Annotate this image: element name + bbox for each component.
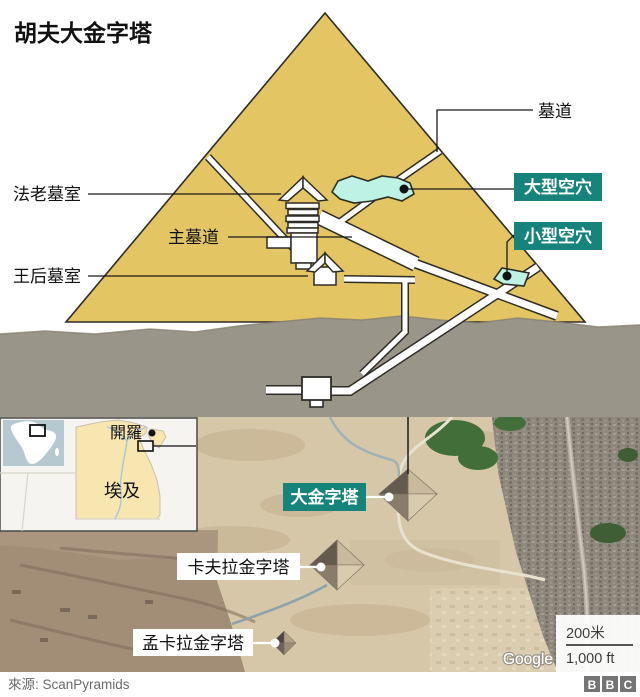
infographic: 胡夫大金字塔 墓道 法老墓室 主墓道 王后墓室 大型空穴 小型空穴 (0, 0, 640, 697)
location-inset: 開羅 埃及 (0, 418, 197, 531)
satellite-map: 大金字塔 卡夫拉金字塔 孟卡拉金字塔 (0, 415, 640, 672)
footer: 來源: ScanPyramids B B C (0, 672, 640, 697)
small-void-label: 小型空穴 (524, 226, 592, 246)
page-title: 胡夫大金字塔 (14, 20, 153, 46)
small-void-tag: 小型空穴 (514, 222, 602, 250)
cairo-dot (149, 430, 156, 437)
map-scale: 200米 1,000 ft (556, 615, 640, 672)
queens-chamber-label: 王后墓室 (13, 267, 81, 286)
ruins-field (350, 540, 500, 585)
scale-imperial: 1,000 ft (566, 651, 614, 667)
pyramid-cross-section: 胡夫大金字塔 墓道 法老墓室 主墓道 王后墓室 大型空穴 小型空穴 (0, 0, 640, 417)
scale-metric: 200米 (566, 625, 605, 642)
bbc-letter-c: C (624, 678, 633, 692)
bbc-logo: B B C (584, 676, 636, 692)
bbc-letter-b2: B (606, 678, 615, 692)
big-void-label: 大型空穴 (524, 177, 592, 197)
source-credit: 來源: ScanPyramids (8, 677, 130, 692)
big-void-tag: 大型空穴 (514, 173, 602, 201)
bbc-letter-b1: B (588, 678, 597, 692)
queens-passage (344, 279, 415, 280)
infographic-canvas: 胡夫大金字塔 墓道 法老墓室 主墓道 王后墓室 大型空穴 小型空穴 (0, 0, 640, 697)
small-void-dot (503, 272, 512, 281)
cairo-label: 開羅 (110, 425, 142, 442)
khafre-label: 卡夫拉金字塔 (188, 558, 290, 577)
great-pyramid-label: 大金字塔 (291, 487, 360, 507)
menkaure-label: 孟卡拉金字塔 (142, 634, 244, 653)
map-credit-front: Google (503, 651, 553, 668)
kings-chamber-label: 法老墓室 (13, 185, 81, 204)
big-void-dot (400, 185, 409, 194)
corridor-label: 墓道 (538, 102, 572, 121)
egypt-label: 埃及 (104, 481, 140, 501)
grand-gallery-label: 主墓道 (168, 228, 219, 247)
